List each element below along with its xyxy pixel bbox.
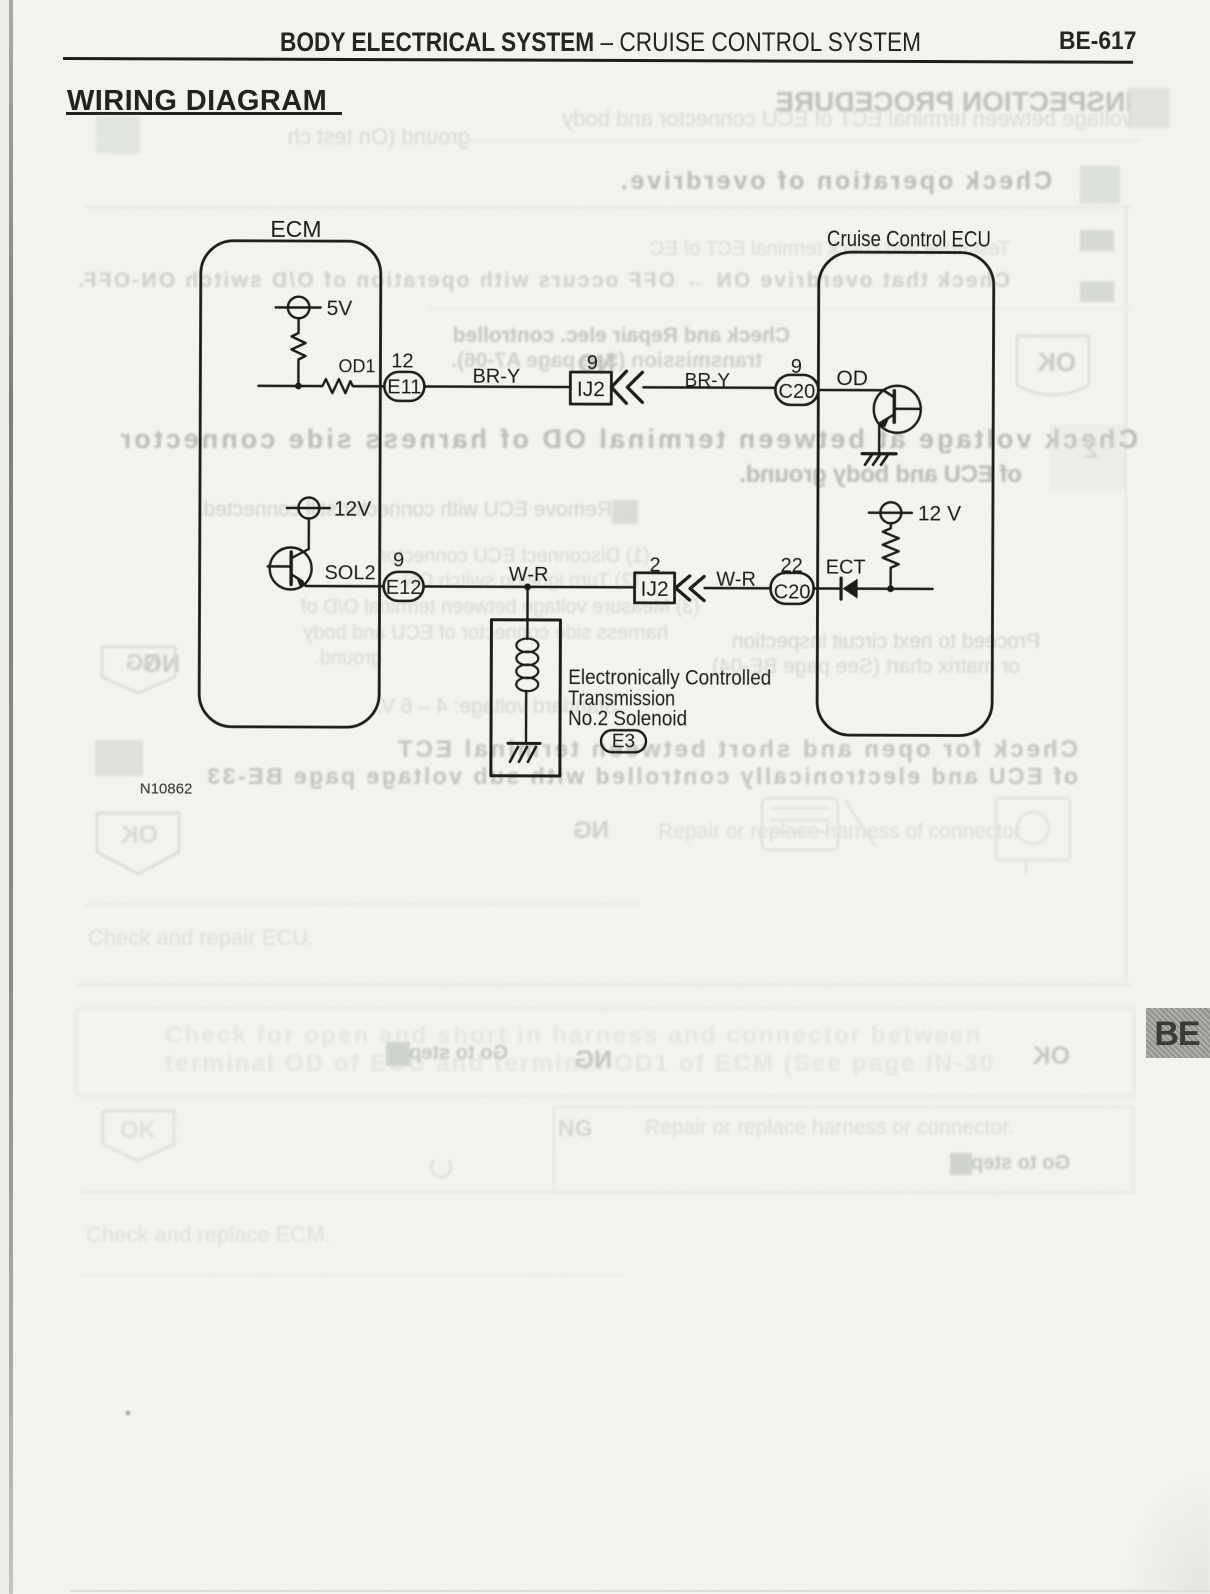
svg-text:12 V: 12 V [918, 502, 961, 525]
svg-text:E12: E12 [386, 577, 422, 599]
svg-text:ECM: ECM [270, 216, 321, 242]
svg-text:N10862: N10862 [140, 780, 193, 797]
svg-text:W-R: W-R [509, 564, 549, 586]
svg-text:W-R: W-R [716, 569, 756, 591]
svg-text:ECT: ECT [826, 557, 866, 579]
svg-text:E3: E3 [612, 731, 635, 752]
svg-text:IJ2: IJ2 [641, 578, 669, 601]
svg-text:E11: E11 [387, 376, 421, 398]
svg-text:12: 12 [391, 350, 413, 372]
svg-text:5V: 5V [327, 297, 353, 320]
svg-text:OD: OD [836, 367, 868, 390]
svg-text:C20: C20 [774, 581, 811, 603]
svg-text:SOL2: SOL2 [324, 562, 375, 584]
svg-text:Cruise Control ECU: Cruise Control ECU [827, 226, 991, 252]
svg-text:C20: C20 [778, 381, 815, 403]
svg-text:No.2 Solenoid: No.2 Solenoid [568, 707, 687, 730]
svg-text:IJ2: IJ2 [577, 378, 605, 401]
svg-text:9: 9 [393, 549, 404, 571]
svg-text:BR-Y: BR-Y [472, 366, 520, 388]
svg-text:BR-Y: BR-Y [685, 370, 731, 391]
svg-text:12V: 12V [334, 498, 371, 521]
svg-text:OD1: OD1 [338, 356, 375, 376]
